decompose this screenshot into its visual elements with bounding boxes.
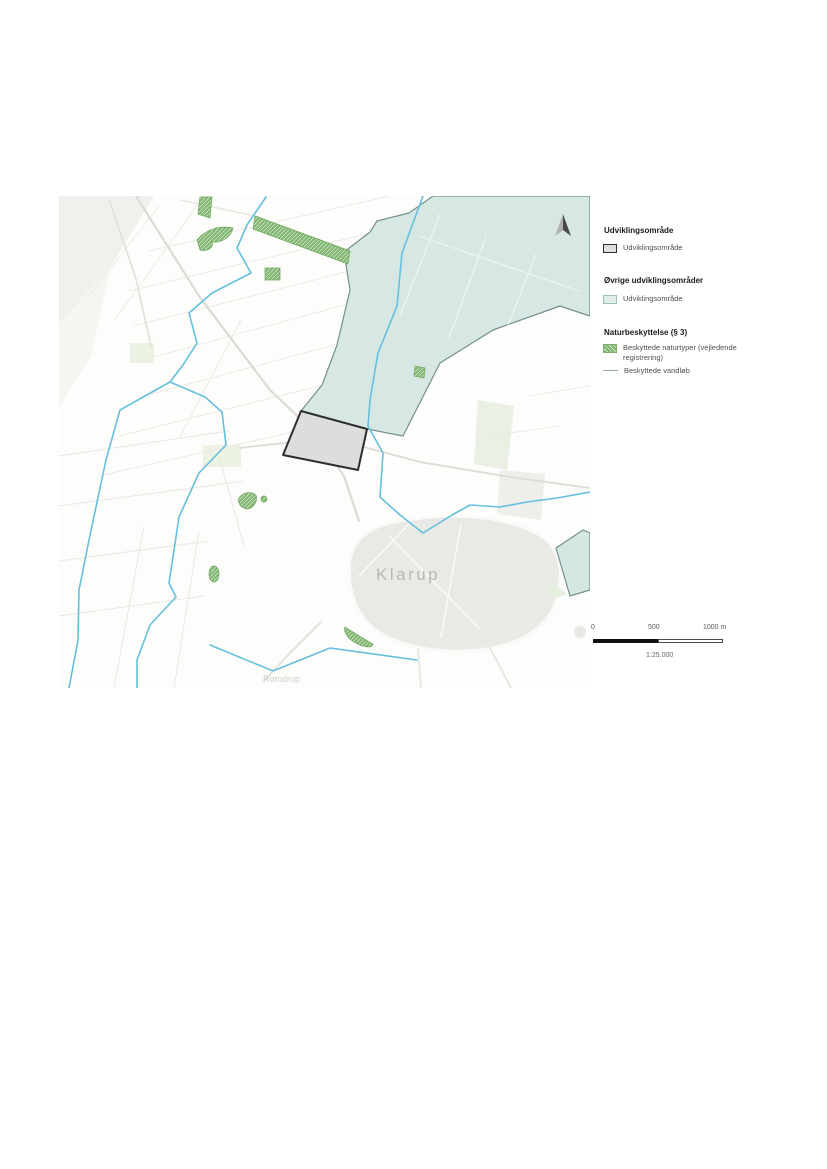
legend-item-label: Beskyttede vandløb	[624, 366, 742, 376]
village-label: Romdrup	[263, 674, 300, 684]
edge-road-blob	[574, 626, 586, 638]
legend-item-other-development: Udviklingsområde	[603, 294, 741, 304]
scalebar-empty-segment	[658, 639, 723, 644]
scalebar-label-500: 500	[648, 624, 660, 631]
scalebar-label-0: 0	[591, 624, 595, 631]
protected-nature-swatch	[603, 344, 617, 353]
map-figure: Klarup Romdrup	[59, 196, 590, 688]
legend-title-other-development: Øvrige udviklingsområder	[604, 276, 703, 285]
legend-title-development: Udviklingsområde	[604, 226, 673, 235]
scalebar-filled-segment	[593, 639, 658, 644]
legend-item-development: Udviklingsområde	[603, 243, 741, 253]
legend-item-protected-stream: Beskyttede vandløb	[603, 366, 742, 376]
legend-item-label: Udviklingsområde	[623, 243, 741, 253]
legend-item-protected-nature: Beskyttede naturtyper (vejledende regist…	[603, 343, 741, 363]
legend-item-label: Udviklingsområde	[623, 294, 741, 304]
scalebar	[593, 638, 723, 644]
protected-stream-swatch	[603, 370, 618, 371]
town-label: Klarup	[376, 565, 440, 584]
document-page: Klarup Romdrup Udviklingsområde Udviklin…	[0, 0, 827, 1169]
other-development-area-swatch	[603, 295, 617, 304]
legend-item-label: Beskyttede naturtyper (vejledende regist…	[623, 343, 741, 363]
map-canvas: Klarup Romdrup	[59, 196, 590, 688]
scalebar-label-1000m: 1000 m	[703, 624, 726, 631]
development-area-swatch	[603, 244, 617, 253]
scalebar-ratio: 1:25.000	[646, 652, 673, 659]
legend-title-nature-protection: Naturbeskyttelse (§ 3)	[604, 328, 687, 337]
